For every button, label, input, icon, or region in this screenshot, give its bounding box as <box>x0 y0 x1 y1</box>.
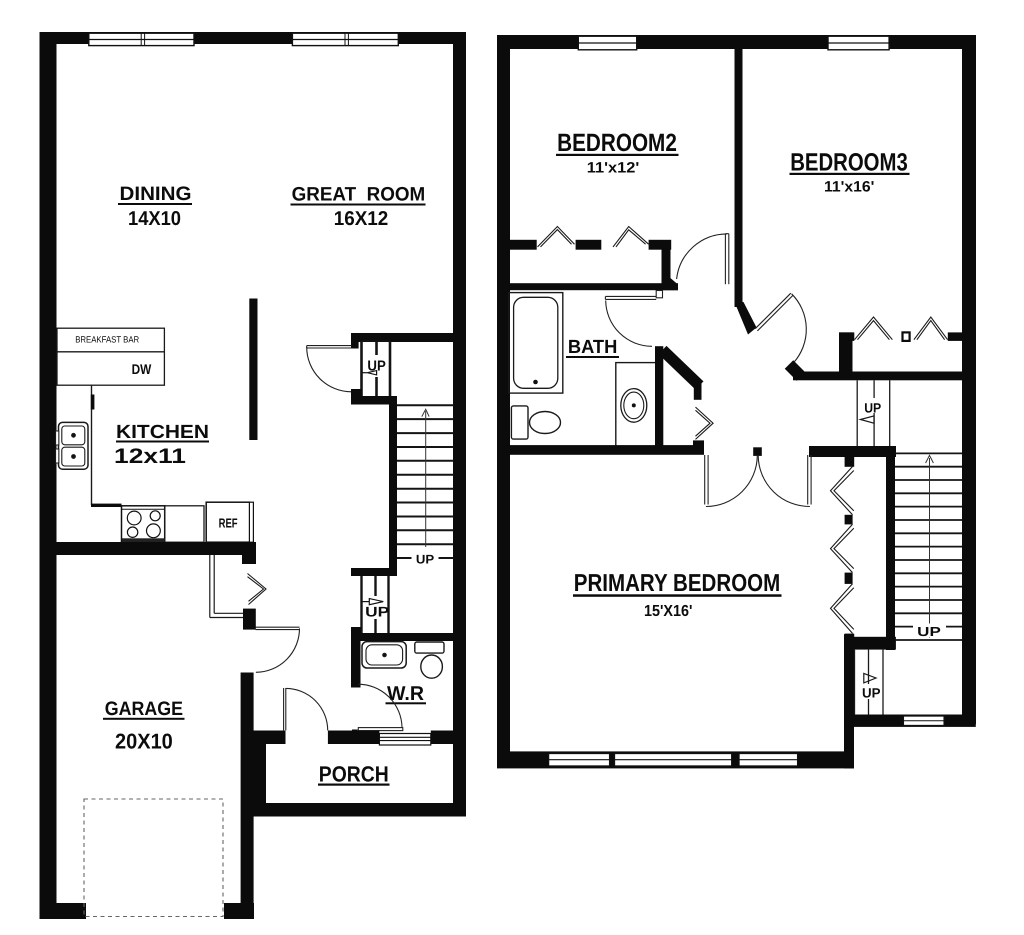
svg-text:BEDROOM2: BEDROOM2 <box>557 129 677 157</box>
svg-text:KITCHEN: KITCHEN <box>116 422 209 443</box>
svg-text:11'x12': 11'x12' <box>587 160 640 177</box>
svg-text:DW: DW <box>132 361 152 377</box>
svg-text:REF: REF <box>219 516 238 531</box>
svg-text:11'x16': 11'x16' <box>824 178 874 195</box>
svg-text:GREAT ROOM: GREAT ROOM <box>292 184 426 206</box>
svg-text:20X10: 20X10 <box>115 730 173 754</box>
svg-text:UP: UP <box>416 553 434 567</box>
svg-text:BEDROOM3: BEDROOM3 <box>790 149 908 177</box>
svg-text:GARAGE: GARAGE <box>105 698 183 720</box>
svg-text:DINING: DINING <box>120 183 192 205</box>
svg-text:UP: UP <box>365 604 389 620</box>
svg-text:UP: UP <box>862 685 881 700</box>
svg-text:UP: UP <box>917 624 941 639</box>
svg-text:14X10: 14X10 <box>128 208 181 230</box>
svg-text:15'X16': 15'X16' <box>644 603 692 620</box>
svg-text:BREAKFAST BAR: BREAKFAST BAR <box>75 335 139 345</box>
svg-text:12x11: 12x11 <box>114 445 186 468</box>
svg-text:UP: UP <box>864 401 881 416</box>
svg-text:PRIMARY BEDROOM: PRIMARY BEDROOM <box>574 570 781 597</box>
svg-text:16X12: 16X12 <box>334 208 389 230</box>
svg-text:BATH: BATH <box>568 337 618 358</box>
svg-text:PORCH: PORCH <box>319 762 389 787</box>
